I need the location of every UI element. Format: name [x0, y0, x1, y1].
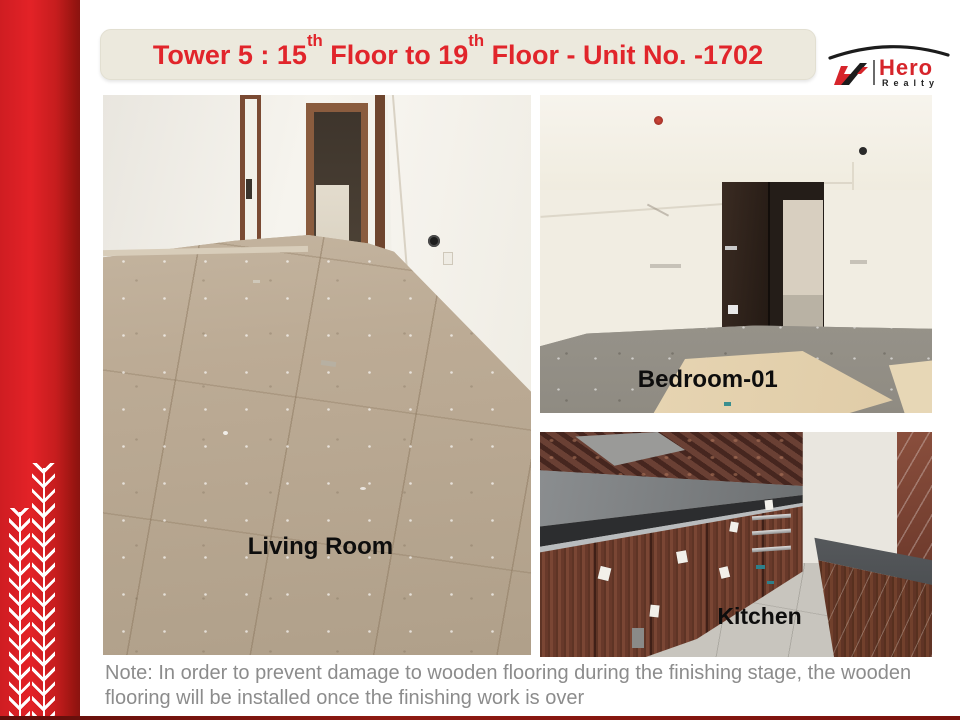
logo-mark-icon — [833, 60, 869, 86]
paper-tag — [649, 605, 659, 618]
logo-divider — [873, 60, 875, 85]
note-text: Note: In order to prevent damage to wood… — [105, 661, 917, 711]
photo-label-living-room: Living Room — [248, 533, 393, 561]
wall-stamp — [650, 264, 681, 268]
hallway-floor — [783, 295, 823, 330]
hero-realty-logo: Hero Realty — [827, 38, 951, 92]
photo-label-kitchen: Kitchen — [717, 603, 801, 630]
title-banner: Tower 5 : 15th Floor to 19th Floor - Uni… — [100, 29, 816, 80]
wall-corner-line — [852, 162, 854, 191]
door — [245, 99, 258, 256]
title-part: Floor - Unit No. -1702 — [484, 40, 763, 70]
debris — [724, 402, 731, 406]
wheat-pattern-icon — [9, 508, 30, 720]
slide: Tower 5 : 15th Floor to 19th Floor - Uni… — [0, 0, 960, 720]
slide-title: Tower 5 : 15th Floor to 19th Floor - Uni… — [153, 39, 763, 71]
paper-tag — [676, 550, 688, 564]
title-part: Tower 5 : 15 — [153, 40, 307, 70]
logo-sub-text: Realty — [882, 78, 939, 88]
bottom-rule — [0, 716, 960, 720]
switch-plate — [443, 252, 453, 265]
wall-stamp — [850, 260, 868, 264]
door-sticker — [728, 305, 738, 315]
debris — [360, 487, 366, 490]
paper-tag — [765, 499, 774, 510]
debris — [767, 581, 774, 584]
debris — [253, 280, 260, 283]
ceiling — [540, 95, 932, 190]
title-superscript: th — [468, 31, 484, 50]
photo-living-room: Living Room — [103, 95, 531, 655]
floor-object — [632, 628, 644, 648]
title-superscript: th — [307, 31, 323, 50]
debris — [223, 431, 228, 435]
fire-sprinkler — [654, 116, 663, 125]
door-handle — [246, 179, 252, 199]
wall-mark — [647, 204, 669, 217]
photo-bedroom-01: Bedroom-01 — [540, 95, 932, 413]
door-handle — [725, 246, 737, 250]
door-frame — [375, 95, 384, 257]
hallway-wall — [783, 200, 823, 302]
photo-label-bedroom-01: Bedroom-01 — [638, 366, 778, 394]
title-part: Floor to 19 — [323, 40, 469, 70]
wheat-pattern-icon — [32, 463, 55, 720]
photo-kitchen: Kitchen — [540, 432, 932, 657]
debris — [756, 565, 765, 569]
